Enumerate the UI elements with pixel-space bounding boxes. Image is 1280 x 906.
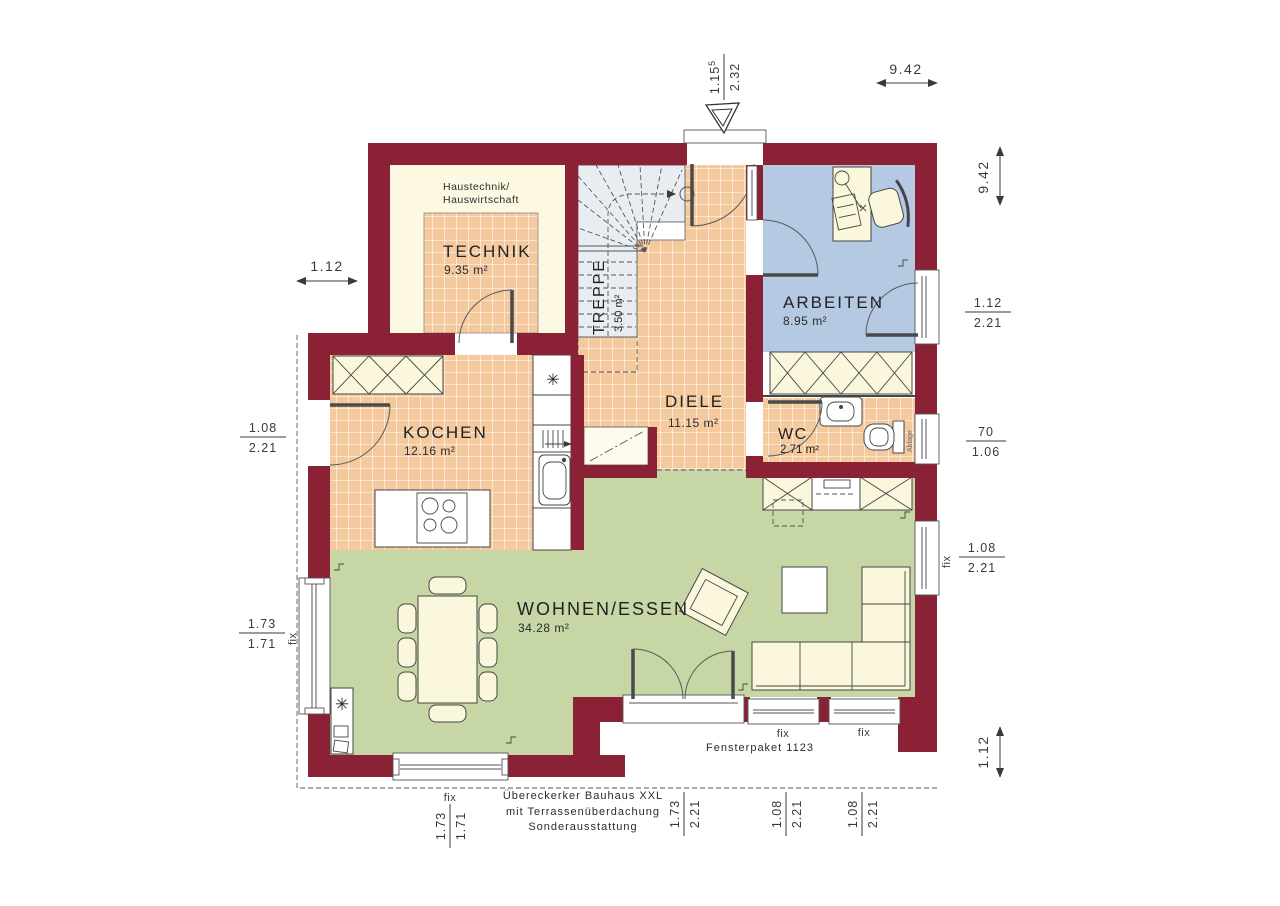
room-area-kochen: 12.16 m² — [404, 444, 455, 458]
dim-left-upper: 1.12 — [296, 258, 358, 285]
svg-text:9.42: 9.42 — [889, 61, 922, 77]
footer-line-2: mit Terrassenüberdachung — [506, 806, 660, 818]
svg-text:1.12: 1.12 — [975, 735, 991, 768]
svg-text:1.12: 1.12 — [310, 258, 343, 274]
svg-text:1.12: 1.12 — [974, 296, 1002, 310]
svg-text:1.155: 1.155 — [707, 60, 722, 94]
technik-note-2: Hauswirtschaft — [443, 194, 519, 206]
plant-icon: ✳ — [335, 695, 349, 714]
room-label-kochen: KOCHEN — [403, 423, 488, 442]
room-label-wc: WC — [778, 426, 808, 443]
room-area-wc: 2.71 m² — [780, 444, 819, 456]
dim-left-door: 1.08 2.21 — [240, 421, 286, 455]
dim-bottom-window-mid: 1.08 2.21 — [770, 792, 804, 836]
svg-text:fix: fix — [941, 556, 953, 569]
dim-entrance: 1.155 2.32 — [707, 54, 742, 100]
room-label-wohnen: WOHNEN/ESSEN — [517, 599, 689, 619]
svg-text:2.32: 2.32 — [728, 63, 742, 91]
room-area-treppe: 3.50 m² — [613, 294, 625, 332]
svg-text:1.73: 1.73 — [248, 617, 276, 631]
bottom-window-2 — [829, 699, 900, 724]
room-area-wohnen: 34.28 m² — [518, 621, 569, 635]
kitchen-counter: ✳ — [533, 355, 572, 550]
stair-landing-edge — [637, 222, 685, 240]
bottom-left-window — [393, 753, 508, 780]
svg-text:1.71: 1.71 — [248, 637, 276, 651]
dim-right-wc: 70 1.06 — [966, 425, 1006, 459]
svg-text:2.21: 2.21 — [790, 800, 804, 828]
dim-bottom-left-window: 1.73 1.71 — [434, 804, 468, 848]
floor-plan-page: ✳ — [0, 0, 1280, 906]
svg-text:1.08: 1.08 — [968, 541, 996, 555]
svg-text:2.21: 2.21 — [688, 800, 702, 828]
svg-text:1.08: 1.08 — [249, 421, 277, 435]
fridge-icon: ✳ — [546, 372, 559, 389]
svg-text:2.21: 2.21 — [968, 561, 996, 575]
svg-text:1.71: 1.71 — [454, 812, 468, 840]
technik-note-1: Haustechnik/ — [443, 181, 510, 193]
room-area-diele: 11.15 m² — [668, 416, 718, 430]
svg-text:1.73: 1.73 — [434, 812, 448, 840]
svg-text:1.73: 1.73 — [668, 800, 682, 828]
media-board — [812, 477, 860, 510]
wc-window — [915, 414, 939, 464]
dim-top-width: 9.42 — [876, 61, 938, 87]
room-label-technik: TECHNIK — [443, 242, 532, 261]
room-area-technik: 9.35 m² — [444, 263, 488, 277]
svg-text:2.21: 2.21 — [249, 441, 277, 455]
coffee-table — [782, 567, 827, 613]
dim-bottom-window-right: 1.08 2.21 — [846, 792, 880, 836]
floor-plan-drawing: ✳ — [0, 0, 1280, 906]
svg-text:1.06: 1.06 — [972, 445, 1000, 459]
svg-text:1.08: 1.08 — [846, 800, 860, 828]
svg-text:70: 70 — [978, 425, 994, 439]
left-window — [299, 578, 330, 714]
dim-right-bottom: 1.12 — [975, 726, 1004, 778]
fensterpaket-label: Fensterpaket 1123 — [706, 742, 814, 754]
wc-sink-icon — [820, 397, 862, 426]
fix-window-2: fix — [858, 727, 871, 739]
ablage-label: Ablage — [907, 430, 914, 452]
kochen-door-opening — [301, 400, 330, 466]
kitchen-cabinets — [333, 356, 443, 394]
dim-right-window: 1.08 2.21 fix — [941, 541, 1005, 575]
bottom-window-1 — [748, 699, 819, 724]
entrance-arrow-icon — [706, 103, 739, 133]
sink-icon — [539, 455, 570, 505]
dim-left-window: 1.73 1.71 fix — [239, 617, 299, 651]
footer-line-1: Übereckerker Bauhaus XXL — [503, 790, 663, 802]
fix-window-1: fix — [777, 728, 790, 740]
entrance-opening — [687, 143, 763, 165]
svg-text:fix: fix — [287, 633, 299, 646]
dim-bottom-left-fix: fix — [444, 792, 457, 804]
svg-text:1.08: 1.08 — [770, 800, 784, 828]
arbeiten-wardrobe — [770, 352, 912, 394]
svg-text:2.21: 2.21 — [974, 316, 1002, 330]
dim-right-door: 1.12 2.21 — [965, 296, 1011, 330]
room-label-treppe: TREPPE — [591, 259, 608, 335]
toilet-icon — [864, 421, 904, 453]
kitchen-island — [375, 490, 490, 547]
wohnen-right-window — [915, 521, 939, 595]
plant-sideboard: ✳ — [331, 688, 353, 754]
svg-text:9.42: 9.42 — [975, 160, 991, 193]
svg-text:2.21: 2.21 — [866, 800, 880, 828]
room-label-diele: DIELE — [665, 392, 724, 411]
dim-bottom-door: 1.73 2.21 — [668, 792, 702, 836]
dim-right-height: 9.42 — [975, 146, 1004, 206]
footer-line-3: Sonderausstattung — [528, 821, 637, 833]
dining-table — [418, 596, 477, 703]
room-area-arbeiten: 8.95 m² — [783, 314, 827, 328]
room-label-arbeiten: ARBEITEN — [783, 293, 884, 312]
